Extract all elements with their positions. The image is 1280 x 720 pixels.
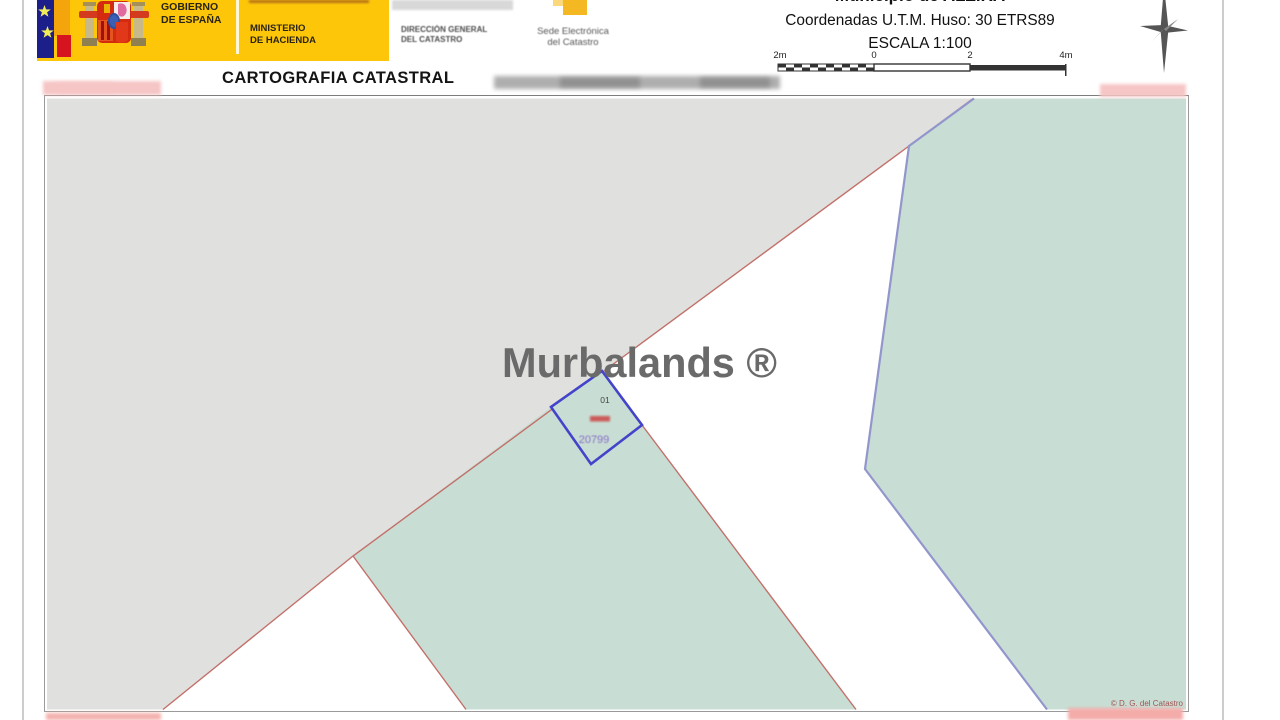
svg-text:2m: 2m	[773, 50, 786, 61]
svg-text:01: 01	[600, 395, 610, 405]
svg-text:Murbalands ®: Murbalands ®	[502, 339, 777, 386]
svg-text:2: 2	[967, 50, 972, 61]
svg-text:4m: 4m	[1059, 50, 1072, 61]
svg-text:0: 0	[871, 50, 876, 61]
svg-text:20799: 20799	[579, 434, 610, 446]
svg-text:© D. G. del Catastro: © D. G. del Catastro	[1111, 699, 1184, 708]
